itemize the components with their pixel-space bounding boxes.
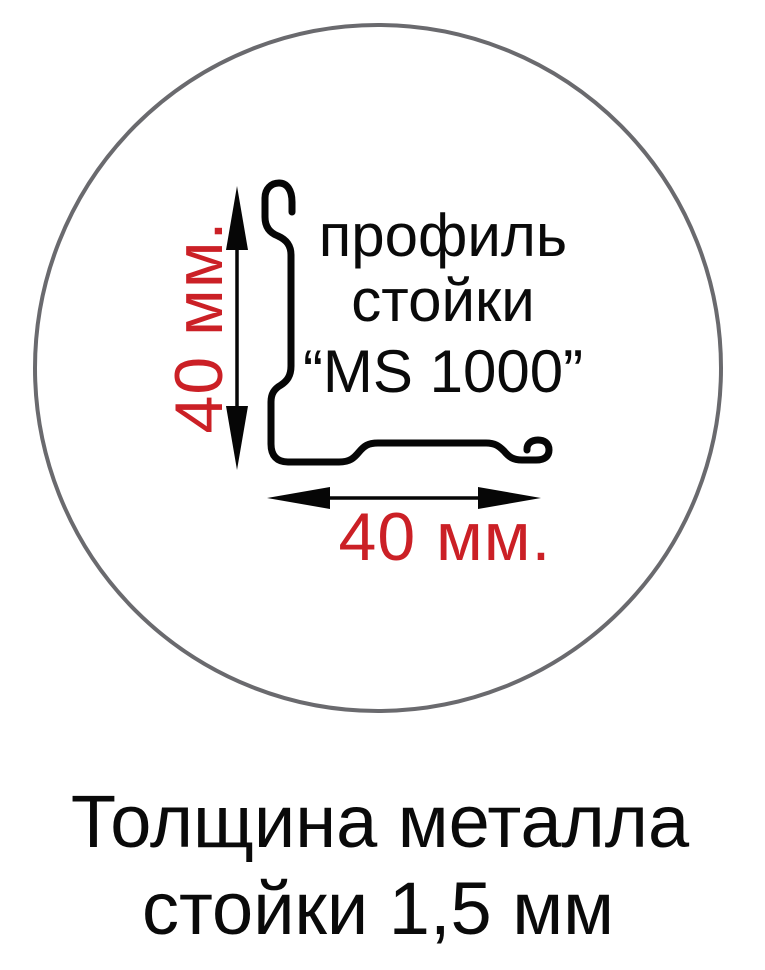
caption-line2: стойки 1,5 мм bbox=[142, 867, 614, 950]
arrowhead-left-icon bbox=[267, 487, 330, 509]
profile-label-line1: профиль bbox=[319, 202, 567, 269]
profile-label-line2: стойки bbox=[351, 267, 534, 334]
width-dimension-label: 40 мм. bbox=[339, 499, 552, 575]
diagram-canvas: профиль стойки “MS 1000” 40 мм. 40 мм. Т… bbox=[0, 0, 765, 970]
profile-label-line3: “MS 1000” bbox=[303, 338, 583, 405]
product-image: профиль стойки “MS 1000” 40 мм. 40 мм. Т… bbox=[0, 0, 765, 970]
caption: Толщина металла стойки 1,5 мм bbox=[71, 780, 690, 950]
height-dimension-label: 40 мм. bbox=[161, 221, 237, 434]
caption-line1: Толщина металла bbox=[71, 780, 690, 863]
